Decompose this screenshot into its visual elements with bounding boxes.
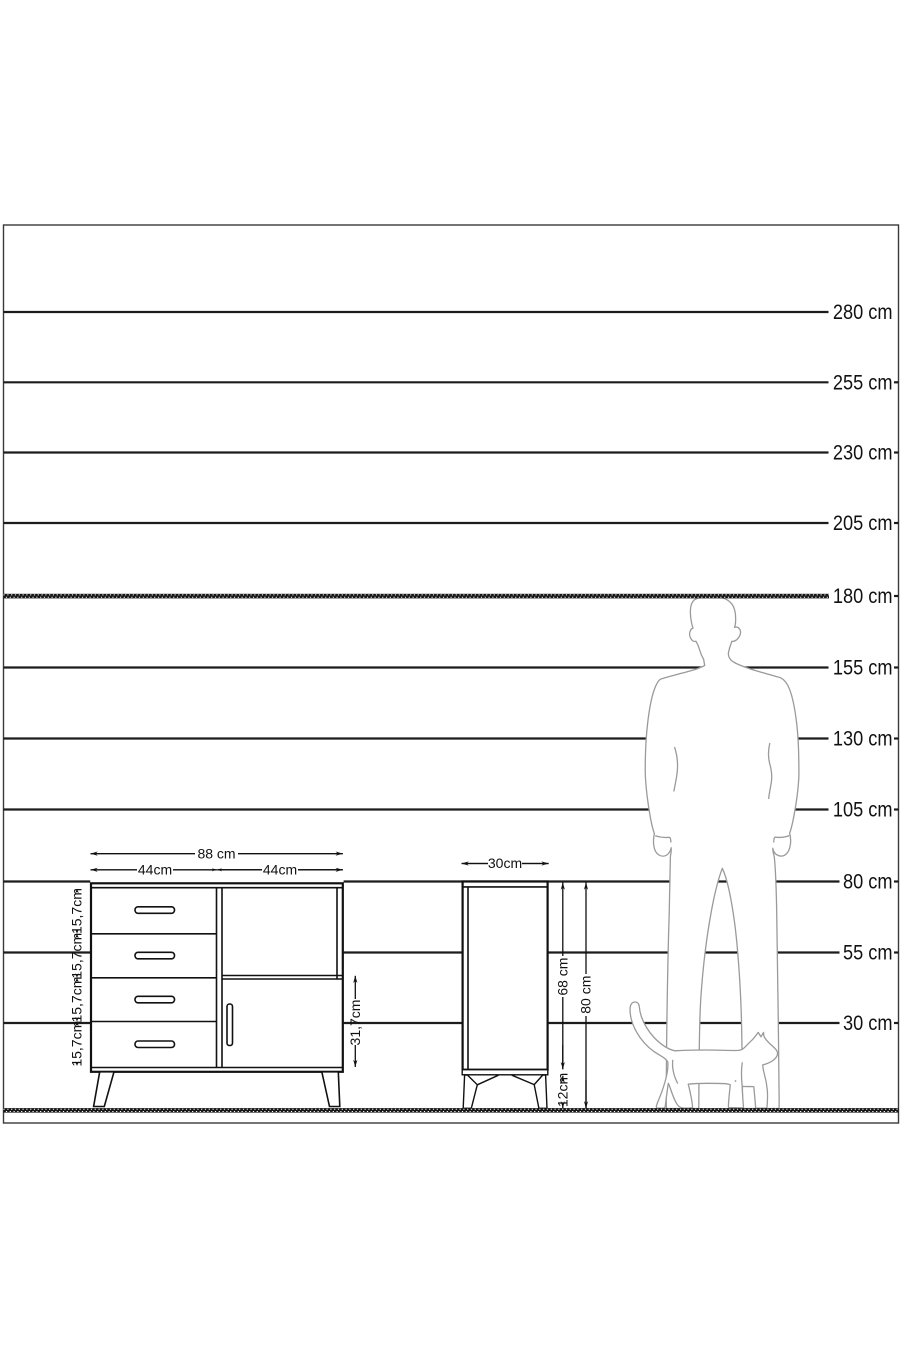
svg-text:155 cm: 155 cm bbox=[833, 657, 893, 680]
svg-text:30 cm: 30 cm bbox=[843, 1012, 893, 1035]
svg-text:88 cm: 88 cm bbox=[197, 845, 235, 861]
svg-text:15,7cm: 15,7cm bbox=[69, 1021, 85, 1067]
svg-text:80 cm: 80 cm bbox=[578, 976, 594, 1014]
svg-text:230 cm: 230 cm bbox=[833, 442, 893, 465]
svg-text:12cm: 12cm bbox=[554, 1073, 570, 1107]
svg-text:105 cm: 105 cm bbox=[833, 799, 893, 822]
svg-text:68 cm: 68 cm bbox=[554, 958, 570, 996]
svg-text:44cm: 44cm bbox=[263, 862, 297, 878]
svg-text:280 cm: 280 cm bbox=[833, 301, 893, 324]
svg-text:130 cm: 130 cm bbox=[833, 728, 893, 751]
svg-text:15,7cm: 15,7cm bbox=[69, 933, 85, 979]
svg-text:80 cm: 80 cm bbox=[843, 871, 893, 894]
svg-text:15,7cm: 15,7cm bbox=[69, 977, 85, 1023]
svg-text:30cm: 30cm bbox=[488, 855, 522, 871]
svg-text:31,7cm: 31,7cm bbox=[347, 1000, 363, 1046]
svg-text:205 cm: 205 cm bbox=[833, 512, 893, 535]
svg-text:180 cm: 180 cm bbox=[833, 585, 893, 608]
svg-text:255 cm: 255 cm bbox=[833, 371, 893, 394]
svg-text:55 cm: 55 cm bbox=[843, 942, 893, 965]
svg-text:44cm: 44cm bbox=[138, 862, 172, 878]
svg-text:15,7cm: 15,7cm bbox=[69, 888, 85, 934]
